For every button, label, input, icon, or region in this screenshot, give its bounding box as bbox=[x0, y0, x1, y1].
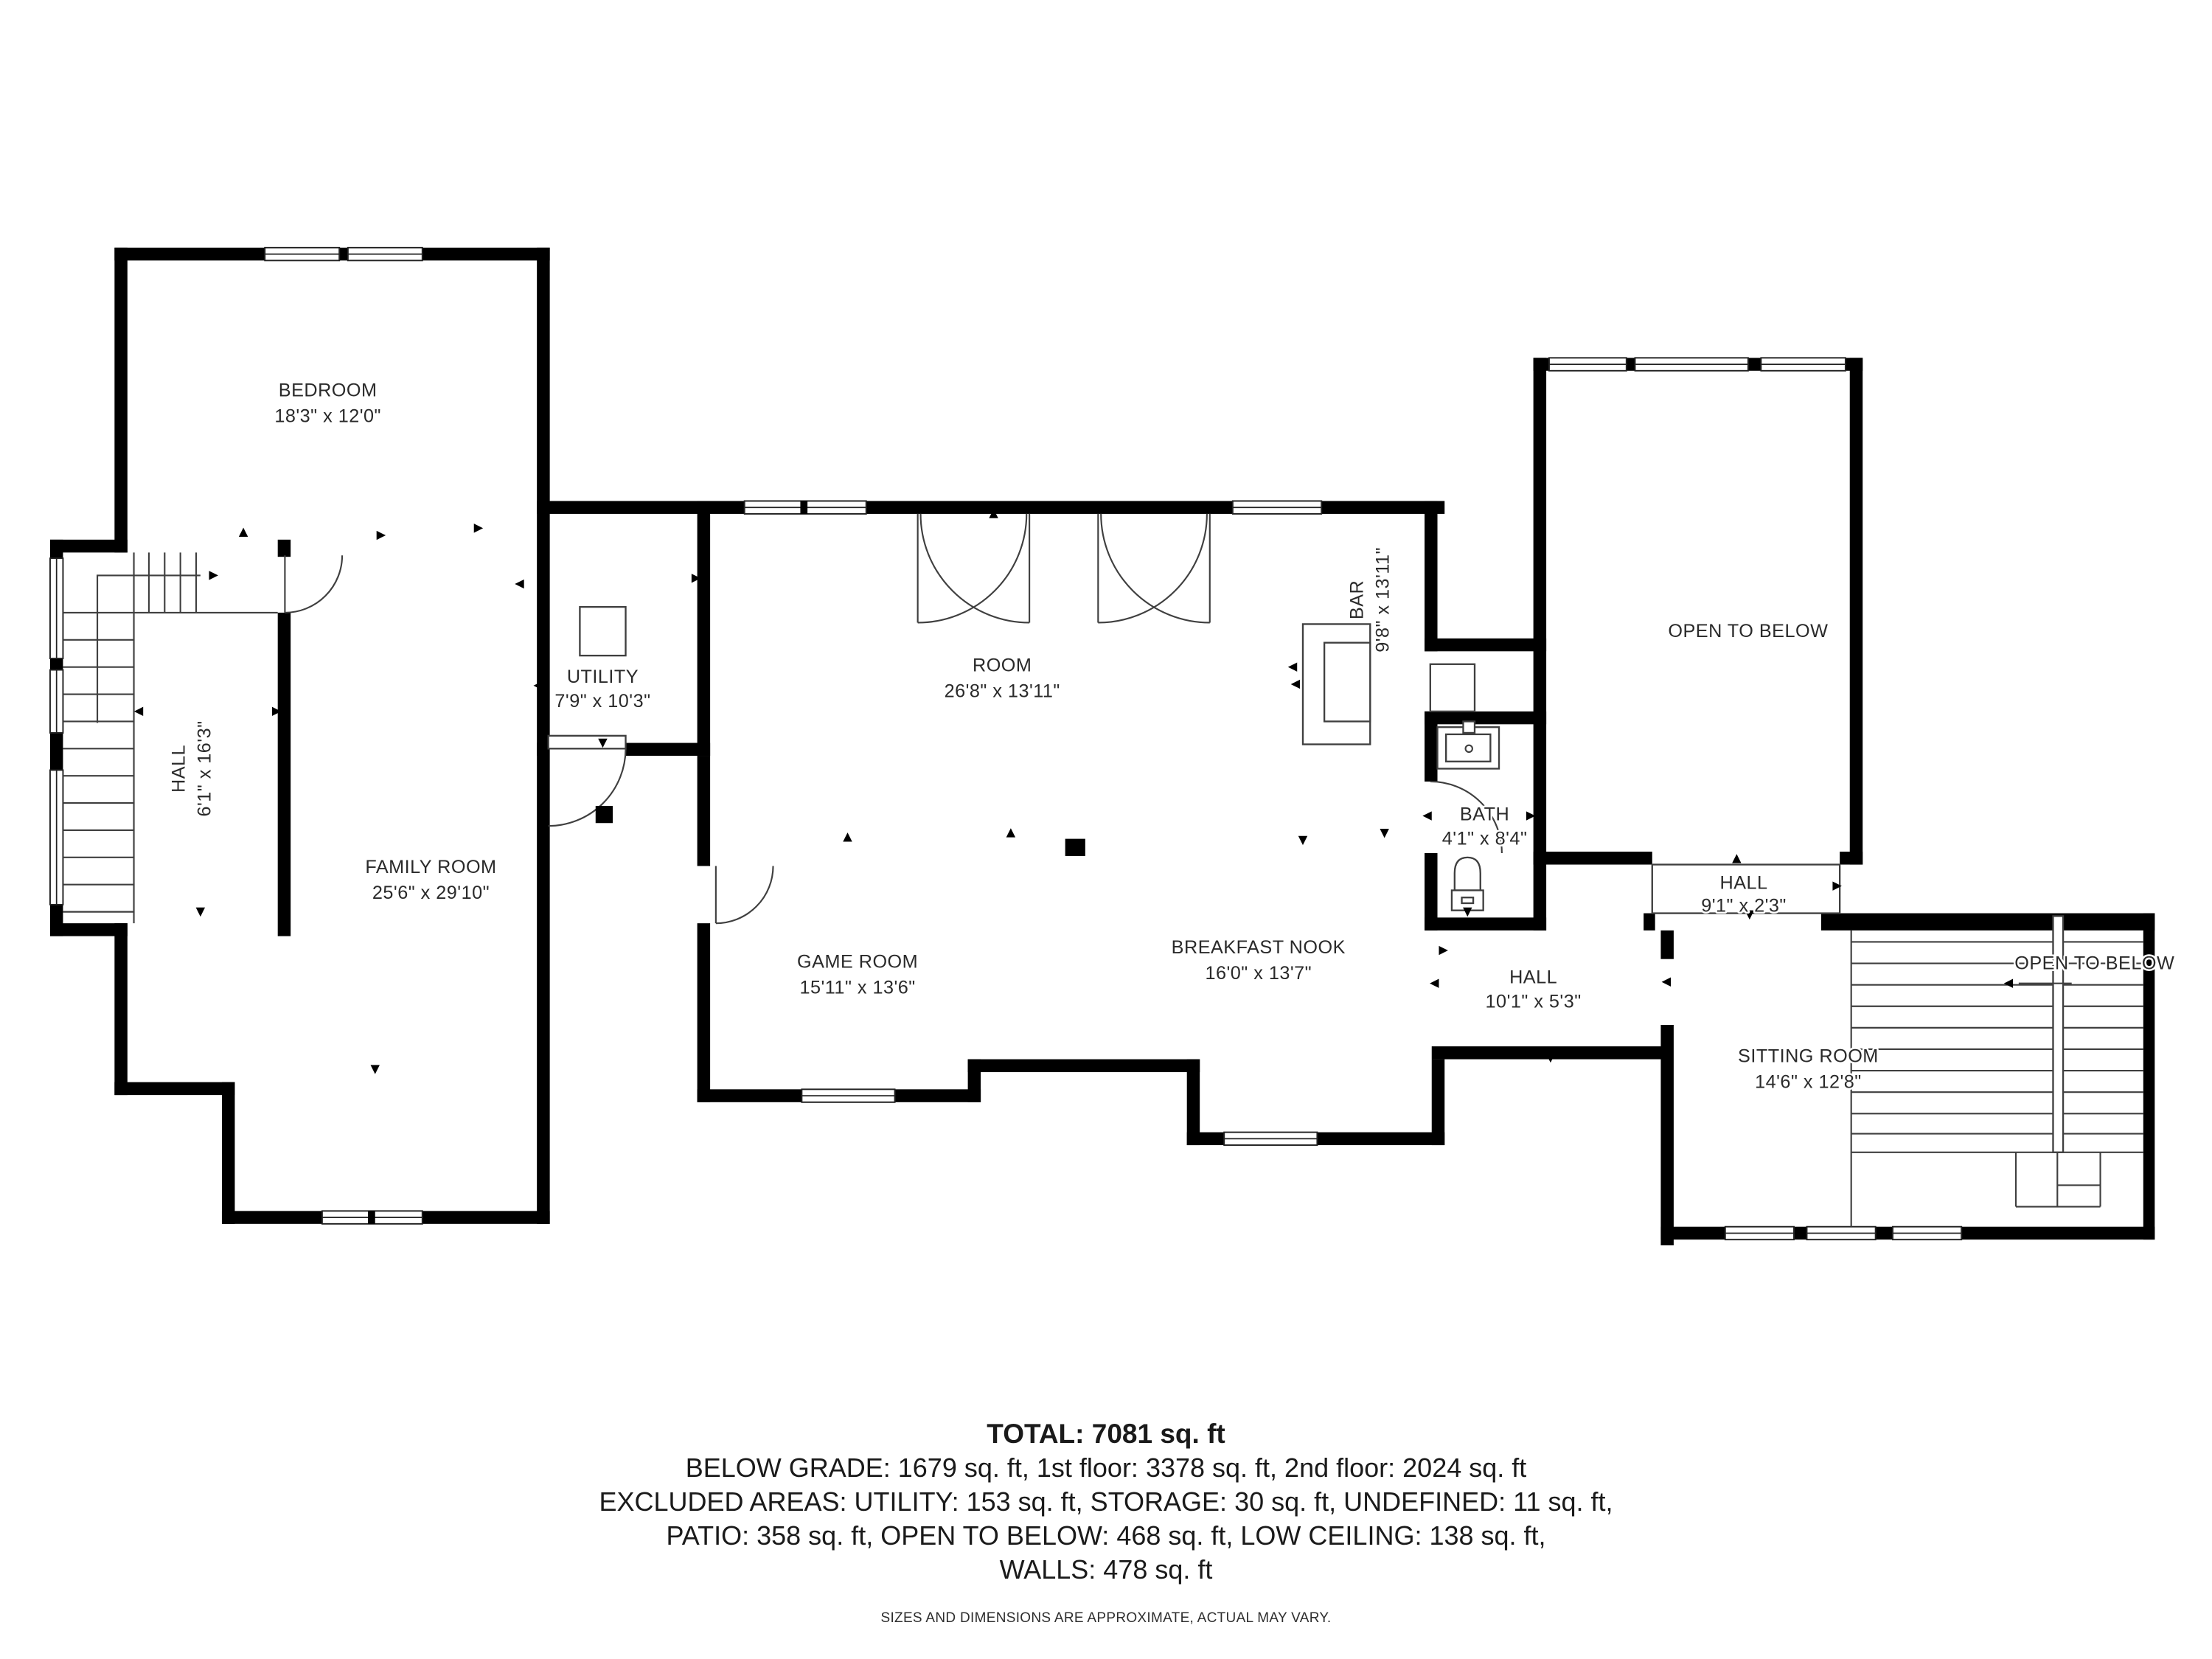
wall-segment bbox=[698, 923, 710, 1102]
arrow-icon bbox=[515, 580, 524, 588]
wall-segment bbox=[222, 1082, 234, 1224]
door-swing bbox=[285, 555, 342, 613]
room-label-hall-lower: HALL bbox=[1509, 967, 1557, 988]
staircase-left bbox=[63, 552, 277, 923]
room-label-family-room: FAMILY ROOM bbox=[365, 857, 496, 877]
open-below-arrow-icon bbox=[2004, 978, 2013, 987]
summary-line-floors: BELOW GRADE: 1679 sq. ft, 1st floor: 337… bbox=[0, 1451, 2212, 1485]
wall-segment bbox=[698, 756, 710, 866]
room-label-utility: UTILITY bbox=[567, 667, 639, 687]
arrow-icon bbox=[1291, 680, 1300, 689]
wall-segment bbox=[1840, 852, 1863, 864]
room-dims-game-room: 15'11" x 13'6" bbox=[799, 977, 915, 998]
wall-segment bbox=[968, 1060, 1200, 1072]
room-dims-room: 26'8" x 13'11" bbox=[945, 681, 1060, 701]
wall-segment bbox=[278, 613, 291, 936]
post-fixture bbox=[1065, 839, 1085, 856]
label-open-to-below-stairs: OPEN TO BELOW bbox=[2014, 953, 2174, 973]
room-dims-hall-strip: 9'1" x 2'3" bbox=[1701, 896, 1787, 917]
wall-segment bbox=[1660, 931, 1673, 959]
room-dims-family-room: 25'6" x 29'10" bbox=[372, 883, 490, 903]
wall-segment bbox=[1425, 712, 1546, 724]
area-summary: TOTAL: 7081 sq. ft BELOW GRADE: 1679 sq.… bbox=[0, 1417, 2212, 1627]
floor-plan-canvas: BEDROOM 18'3" x 12'0" HALL 6'1" x 16'3" … bbox=[0, 0, 2212, 1659]
bathroom-sink bbox=[1438, 721, 1499, 768]
post-fixture bbox=[596, 806, 613, 823]
room-dims-bath: 4'1" x 8'4" bbox=[1442, 828, 1528, 849]
room-dims-bar: 9'8" x 13'11" bbox=[1372, 547, 1393, 653]
wall-segment bbox=[1534, 852, 1652, 864]
arrow-icon bbox=[474, 524, 483, 532]
wall-segment bbox=[1425, 501, 1437, 651]
arrow-icon bbox=[1430, 978, 1439, 987]
arrow-icon bbox=[134, 707, 143, 716]
arrow-icon bbox=[377, 531, 386, 540]
wall-segment bbox=[1425, 639, 1546, 651]
window-mullion bbox=[368, 1211, 375, 1223]
window-mullion bbox=[800, 501, 807, 513]
room-dims-bedroom: 18'3" x 12'0" bbox=[274, 406, 381, 427]
bar-counter bbox=[1303, 624, 1370, 744]
wall-segment bbox=[114, 923, 127, 1095]
room-dims-hall-lower: 10'1" x 5'3" bbox=[1486, 992, 1582, 1012]
label-open-to-below-main: OPEN TO BELOW bbox=[1668, 621, 1828, 641]
stair-direction-arrow-icon bbox=[209, 571, 218, 580]
room-label-game-room: GAME ROOM bbox=[797, 951, 918, 972]
wall-segment bbox=[1821, 914, 2154, 931]
room-label-room: ROOM bbox=[973, 655, 1032, 675]
arrow-icon bbox=[1662, 978, 1671, 987]
total-area: TOTAL: 7081 sq. ft bbox=[0, 1417, 2212, 1451]
arrow-icon bbox=[196, 908, 205, 917]
wall-segment bbox=[114, 248, 127, 553]
arrow-icon bbox=[1298, 836, 1307, 845]
room-dims-utility: 7'9" x 10'3" bbox=[554, 691, 650, 712]
summary-line-patio: PATIO: 358 sq. ft, OPEN TO BELOW: 468 sq… bbox=[0, 1519, 2212, 1553]
wall-segment bbox=[1660, 1025, 1673, 1245]
direction-arrows bbox=[134, 509, 1842, 1074]
wall-segment bbox=[537, 743, 549, 756]
room-dims-hall-upper: 6'1" x 16'3" bbox=[194, 720, 215, 816]
water-heater bbox=[580, 607, 625, 655]
wall-segment bbox=[1850, 358, 1863, 864]
shower bbox=[1430, 664, 1475, 712]
arrow-icon bbox=[843, 832, 852, 841]
stair-landing bbox=[2016, 1152, 2101, 1207]
stair-treads bbox=[63, 552, 196, 911]
stair-rail bbox=[2053, 916, 2063, 1152]
wall-segment bbox=[1432, 1060, 1444, 1145]
room-label-breakfast-nook: BREAKFAST NOOK bbox=[1172, 937, 1346, 958]
room-label-sitting-room: SITTING ROOM bbox=[1738, 1046, 1879, 1066]
door-leaf bbox=[549, 736, 626, 748]
summary-line-excluded: EXCLUDED AREAS: UTILITY: 153 sq. ft, STO… bbox=[0, 1485, 2212, 1519]
room-label-hall-strip: HALL bbox=[1720, 873, 1768, 894]
wall-segment bbox=[114, 1082, 234, 1095]
wall-segment bbox=[1534, 358, 1546, 931]
room-label-bath: BATH bbox=[1460, 804, 1509, 824]
wall-segment bbox=[698, 501, 710, 756]
arrow-icon bbox=[1463, 908, 1472, 917]
arrow-icon bbox=[1288, 662, 1297, 671]
disclaimer-text: SIZES AND DIMENSIONS ARE APPROXIMATE, AC… bbox=[0, 1610, 2212, 1627]
wall-segment bbox=[1644, 914, 1655, 931]
door-swing bbox=[549, 748, 626, 826]
room-label-bedroom: BEDROOM bbox=[279, 380, 378, 401]
arrow-icon bbox=[1439, 946, 1447, 955]
wall-segment bbox=[278, 540, 291, 557]
room-dims-breakfast-nook: 16'0" x 13'7" bbox=[1205, 963, 1312, 984]
arrow-icon bbox=[239, 528, 248, 537]
wall-segment bbox=[1425, 917, 1546, 930]
summary-line-walls: WALLS: 478 sq. ft bbox=[0, 1553, 2212, 1587]
fixtures bbox=[580, 607, 1840, 913]
room-label-bar: BAR bbox=[1347, 580, 1368, 619]
arrow-icon bbox=[1422, 811, 1431, 820]
arrow-icon bbox=[1006, 828, 1015, 837]
toilet bbox=[1452, 858, 1484, 911]
door-swing bbox=[716, 866, 773, 924]
room-label-hall-upper: HALL bbox=[168, 745, 189, 793]
wall-segment bbox=[626, 743, 711, 756]
floor-plan-page: BEDROOM 18'3" x 12'0" HALL 6'1" x 16'3" … bbox=[0, 0, 2212, 1659]
arrow-icon bbox=[1380, 829, 1388, 838]
arrow-icon bbox=[371, 1065, 380, 1074]
room-dims-sitting-room: 14'6" x 12'8" bbox=[1755, 1071, 1862, 1092]
arrow-icon bbox=[1732, 854, 1741, 863]
